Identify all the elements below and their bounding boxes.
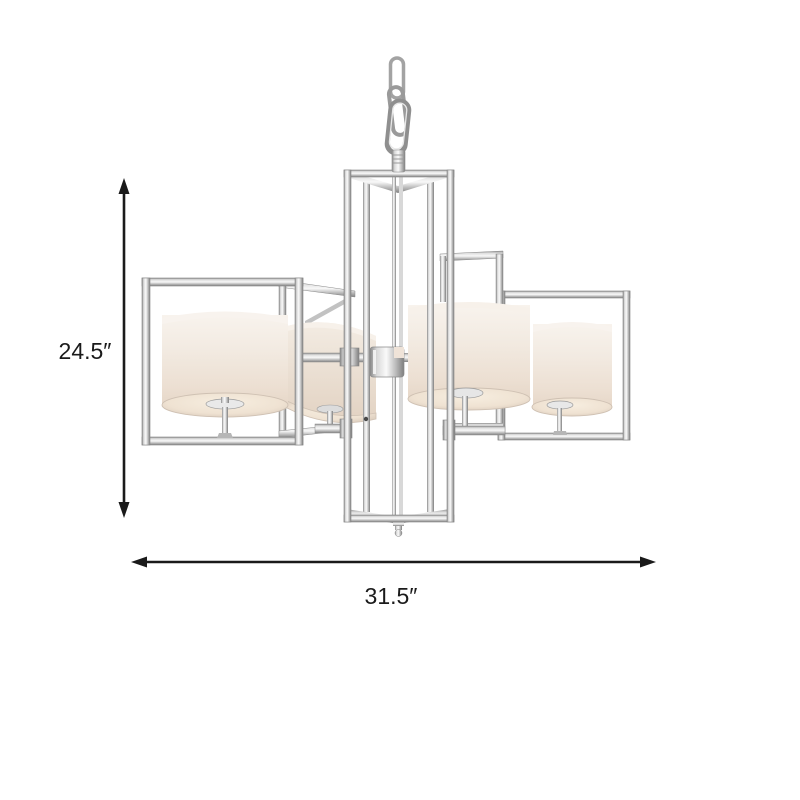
product-dimension-image: 24.5″ 31.5″ [0,0,800,800]
front-left-lamp-shade [162,312,288,439]
width-dimension-label: 31.5″ [341,583,441,610]
chandelier-illustration [0,0,800,800]
center-hub [370,347,404,377]
width-dimension-arrow [131,557,656,568]
height-dimension-label: 24.5″ [54,338,116,365]
front-right-lamp-shade [532,322,612,435]
hanging-chain [386,58,409,172]
height-dimension-arrow [119,178,130,518]
bottom-finial [393,522,404,537]
back-right-lamp-shade [408,302,530,426]
